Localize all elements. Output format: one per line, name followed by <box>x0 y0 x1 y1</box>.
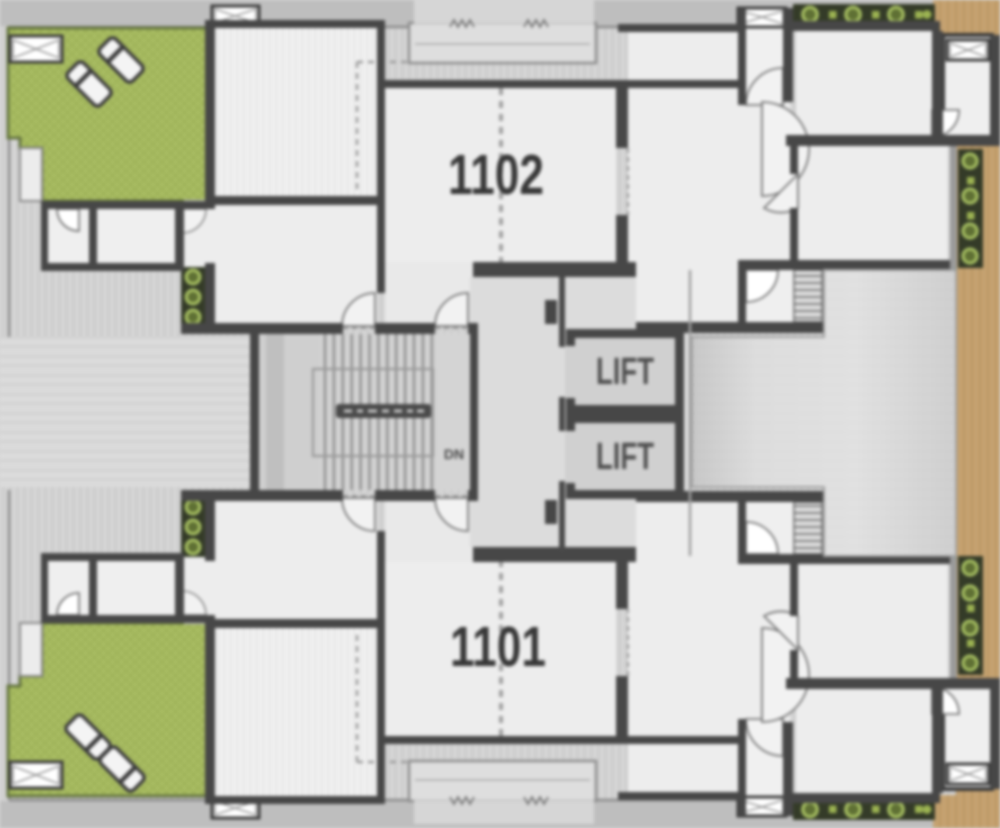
svg-text:1102: 1102 <box>448 143 544 207</box>
svg-text:1101: 1101 <box>450 615 546 679</box>
svg-text:DN: DN <box>444 446 464 462</box>
svg-text:LIFT: LIFT <box>596 351 654 393</box>
svg-text:LIFT: LIFT <box>596 436 654 478</box>
